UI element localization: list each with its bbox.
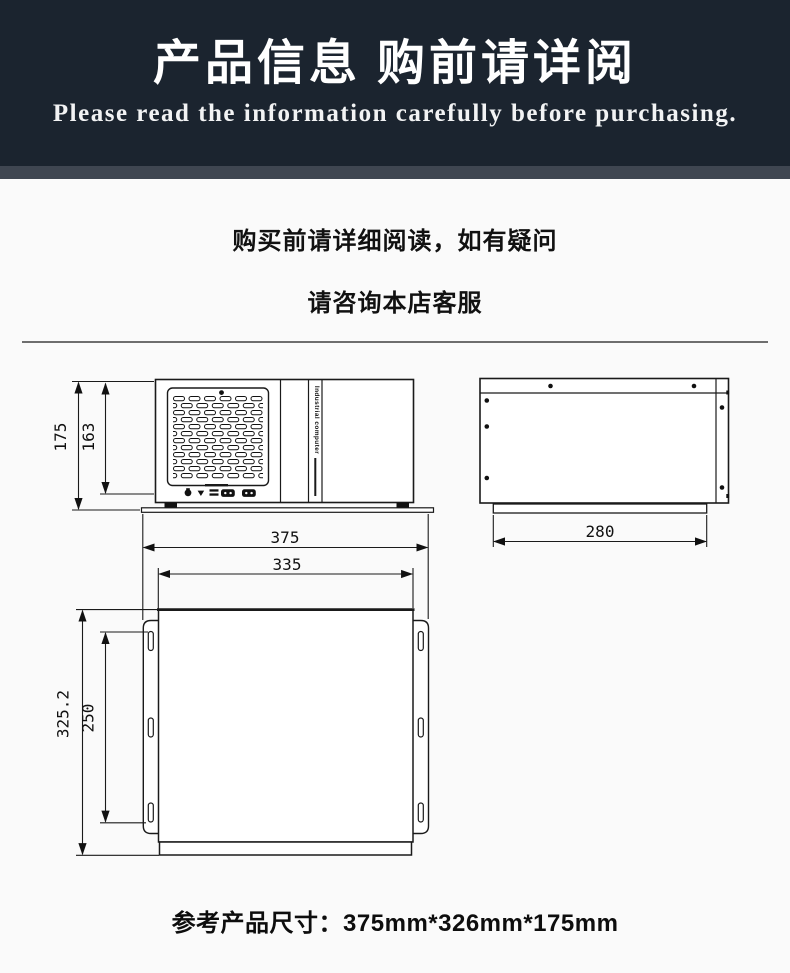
- notice-line-2: 请咨询本店客服: [0, 283, 790, 318]
- top-front-edge: [160, 842, 412, 855]
- knob-icon: [185, 489, 192, 496]
- top-view: 325.2 250: [54, 610, 429, 856]
- screw-icon: [219, 390, 224, 395]
- header-banner: 产品信息 购前请详阅 Please read the information c…: [0, 0, 790, 166]
- vent-grille: [168, 388, 269, 486]
- dim-label-175: 175: [51, 423, 70, 452]
- serial-port-icon: [242, 489, 256, 497]
- page-title: 产品信息 购前请详阅: [153, 40, 637, 88]
- top-chassis-outline: [159, 610, 414, 842]
- dimension-drawing: Industrial computer: [0, 355, 790, 875]
- notice-line-1: 购买前请详细阅读，如有疑问: [0, 221, 790, 256]
- dim-label-163: 163: [79, 423, 98, 452]
- section-divider: [22, 341, 768, 343]
- industrial-computer-label: Industrial computer: [313, 386, 320, 454]
- base-plate: [142, 508, 434, 513]
- dim-label-335: 335: [273, 555, 302, 574]
- serial-port-icon: [221, 489, 235, 497]
- dim-label-375: 375: [271, 528, 300, 547]
- reference-size-text: 参考产品尺寸：375mm*326mm*175mm: [0, 903, 790, 938]
- side-chassis-outline: [480, 379, 729, 504]
- side-view: 280: [480, 379, 729, 548]
- dim-label-250: 250: [79, 704, 98, 733]
- banner-bottom-strip: [0, 166, 790, 179]
- dim-label-325-2: 325.2: [54, 690, 73, 738]
- purchase-notice: 购买前请详细阅读，如有疑问 请咨询本店客服: [0, 221, 790, 345]
- front-view: Industrial computer: [51, 380, 434, 513]
- width-dimensions: 375 335: [143, 514, 428, 620]
- page-subtitle: Please read the information carefully be…: [53, 101, 737, 126]
- dim-label-280: 280: [586, 522, 615, 541]
- side-base: [493, 504, 706, 513]
